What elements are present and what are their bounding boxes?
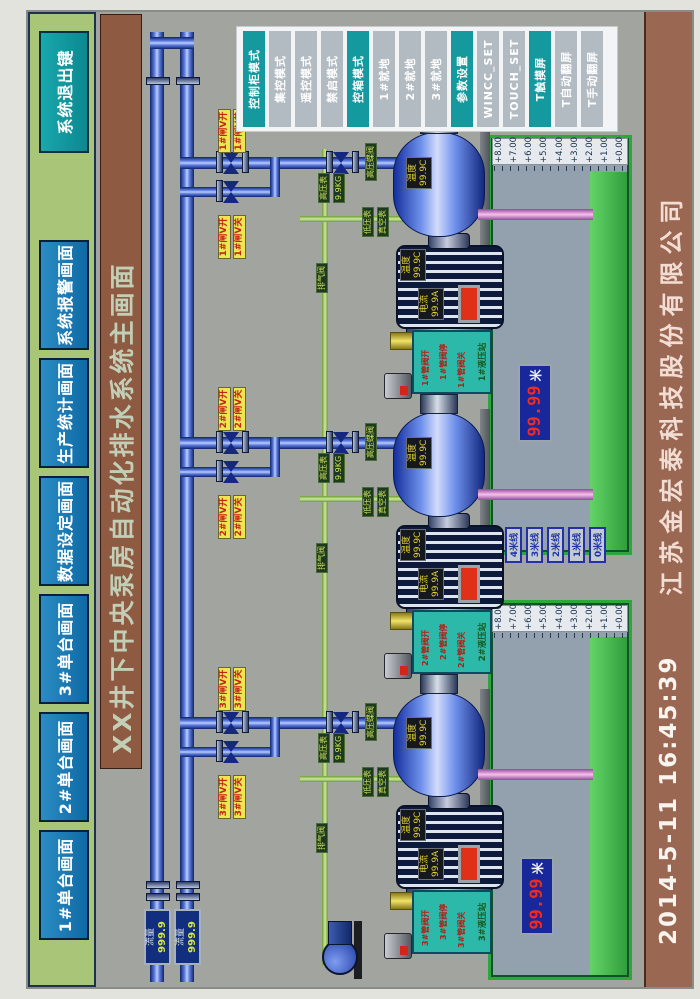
hydraulic-nozzle <box>390 612 414 630</box>
pipe-valve-open-button[interactable]: 2#管阀开 <box>420 630 431 666</box>
scale-tick: +4.00 <box>556 140 565 163</box>
level-line-button-0m[interactable]: 0米线 <box>589 527 606 563</box>
flange <box>352 711 359 733</box>
value: 99.9A <box>431 571 441 597</box>
vacuum-gauge-label: 真空表 <box>377 767 389 797</box>
flow-label: 流量 <box>146 928 156 946</box>
gate-valve[interactable] <box>222 152 240 174</box>
nav-button-data-setting[interactable]: 数据设定画面 <box>39 476 89 586</box>
status-bar: 2014-5-11 16:45:39 江苏金宏泰科技股份有限公司 <box>644 12 692 987</box>
gate-valve[interactable] <box>222 181 240 203</box>
page-title: XX井下中央泵房自动化排水系统主画面 <box>103 261 139 768</box>
mode-button-control-box[interactable]: 控箱模式 <box>347 31 369 127</box>
scale-tick: +6.00 <box>525 140 534 163</box>
scale-tick: +5.00 <box>540 140 549 163</box>
gate-open-label: 2#闸V开 <box>218 495 231 539</box>
pipe-valve-open-button[interactable]: 3#管阀开 <box>420 910 431 946</box>
sump-right-ruler-ticks <box>494 166 626 171</box>
hmi-screen: 1#单台画面 2#单台画面 3#单台画面 数据设定画面 生产统计画面 系统报警画… <box>28 12 692 987</box>
suction-pipe <box>478 489 593 500</box>
label: 温度 <box>408 164 418 182</box>
check-valve <box>332 432 350 454</box>
motor-current-label: 电流99.9A <box>418 568 444 600</box>
label: 电流 <box>420 575 430 593</box>
level-line-button-2m[interactable]: 2米线 <box>547 527 564 563</box>
riser-elbow <box>270 437 280 477</box>
flow-value: 999.9 <box>157 921 168 953</box>
motor-alarm-indicator <box>458 285 480 323</box>
hydraulic-nozzle <box>390 332 414 350</box>
sump-left-level-scale: +8.00+7.00+6.00+5.00+4.00+3.00+2.00+1.00… <box>492 605 628 632</box>
level-value: 99.99 <box>527 878 547 929</box>
pump-temp-label: 温度99.9C <box>406 717 432 749</box>
nav-button-pump1-screen[interactable]: 1#单台画面 <box>39 830 89 940</box>
motor-alarm-indicator <box>458 565 480 603</box>
level-unit: 米 <box>529 862 546 874</box>
motor-temp-label: 温度99.9C <box>400 249 426 281</box>
scale-tick: +3.00 <box>571 140 580 163</box>
value: 99.9C <box>413 252 423 278</box>
vent-valve-label: 排气阀 <box>316 543 328 573</box>
mode-button-auto-page[interactable]: T自动翻屏 <box>555 31 577 127</box>
mode-button-touchscreen[interactable]: T触摸屏 <box>529 31 551 127</box>
hydraulic-nozzle <box>390 892 414 910</box>
pipe-valve-stop-button[interactable]: 3#管阀停 <box>438 904 449 940</box>
motor-temp-label: 温度99.9C <box>400 809 426 841</box>
hydraulic-station-label: 2#液压站 <box>476 623 488 662</box>
flange <box>242 431 249 453</box>
scale-tick: +4.00 <box>556 607 565 630</box>
lp-gauge-label: 低压表 <box>362 767 374 797</box>
level-line-button-3m[interactable]: 3米线 <box>526 527 543 563</box>
hydraulic-station-box-1: 1#管阀开 1#管阀停 1#管阀关 1#液压站 <box>412 330 492 394</box>
motor-alarm-indicator <box>458 845 480 883</box>
pipe-valve-open-button[interactable]: 1#管阀开 <box>420 350 431 386</box>
scale-tick: +7.00 <box>510 607 519 630</box>
mode-button-central[interactable]: 集控模式 <box>269 31 291 127</box>
nav-button-pump3-screen[interactable]: 3#单台画面 <box>39 594 89 704</box>
hp-gauge-value: 9.9KG <box>333 733 345 763</box>
flange <box>146 77 170 85</box>
hydraulic-station-label: 3#液压站 <box>476 903 488 942</box>
mode-button-touch-set[interactable]: TOUCH_SET <box>503 31 525 127</box>
gate-valve[interactable] <box>222 741 240 763</box>
motor-current-label: 电流99.9A <box>418 288 444 320</box>
check-valve <box>332 712 350 734</box>
hp-gauge-value: 9.9KG <box>333 453 345 483</box>
level-unit: 米 <box>527 369 544 381</box>
pipe-valve-close-button[interactable]: 3#管阀关 <box>456 912 467 948</box>
datetime-display: 2014-5-11 16:45:39 <box>656 655 682 945</box>
pump-temp-label: 温度99.9C <box>406 437 432 469</box>
gate-close-label: 2#闸V关 <box>233 495 246 539</box>
vacuum-gauge-label: 真空表 <box>377 487 389 517</box>
mode-button-local-1[interactable]: 1#就地 <box>373 31 395 127</box>
scale-tick: +7.00 <box>510 140 519 163</box>
scale-tick: +0.00 <box>616 140 625 163</box>
discharge-main-pipe-1 <box>150 32 164 982</box>
vacuum-gauge-label: 真空表 <box>377 207 389 237</box>
level-line-button-1m[interactable]: 1米线 <box>568 527 585 563</box>
hp-gauge-label: 高压表 <box>318 733 330 763</box>
sump-right-level-scale: +8.00+7.00+6.00+5.00+4.00+3.00+2.00+1.00… <box>492 138 628 165</box>
title-bar: XX井下中央泵房自动化排水系统主画面 <box>100 14 142 769</box>
scale-tick: +2.00 <box>586 140 595 163</box>
gate-close-label: 3#闸V关 <box>233 775 246 819</box>
value: 99.9C <box>419 720 429 746</box>
sump-right-level-display: 99.99 米 <box>518 364 552 442</box>
pump-temp-label: 温度99.9C <box>406 157 432 189</box>
flange <box>242 151 249 173</box>
mode-button-start-inhibit[interactable]: 禁启模式 <box>321 31 343 127</box>
hydraulic-pump-icon <box>384 373 412 399</box>
mode-button-local-2[interactable]: 2#就地 <box>399 31 421 127</box>
nav-bar: 1#单台画面 2#单台画面 3#单台画面 数据设定画面 生产统计画面 系统报警画… <box>28 12 96 987</box>
hydraulic-station-label: 1#液压站 <box>476 343 488 382</box>
hydraulic-station-box-3: 3#管阀开 3#管阀停 3#管阀关 3#液压站 <box>412 890 492 954</box>
label: 温度 <box>408 724 418 742</box>
mode-button-wincc-set[interactable]: WINCC_SET <box>477 31 499 127</box>
lp-gauge-label: 低压表 <box>362 487 374 517</box>
gate-close-label: 1#闸V关 <box>233 215 246 259</box>
hp-gauge-label: 高压表 <box>318 173 330 203</box>
scale-tick: +3.00 <box>571 607 580 630</box>
value: 99.9A <box>431 291 441 317</box>
label: 温度 <box>402 256 412 274</box>
label: 电流 <box>420 855 430 873</box>
scale-tick: +1.00 <box>601 140 610 163</box>
gate-valve[interactable] <box>222 461 240 483</box>
lp-gauge-label: 低压表 <box>362 207 374 237</box>
gate-open-label: 1#闸V开 <box>218 215 231 259</box>
check-valve <box>332 152 350 174</box>
mode-button-param-set[interactable]: 参数设置 <box>451 31 473 127</box>
gate-open-label: 3#闸V开 <box>218 775 231 819</box>
mode-button-local-3[interactable]: 3#就地 <box>425 31 447 127</box>
mode-panel: 控制柜模式 集控模式 遥控模式 禁启模式 控箱模式 1#就地 2#就地 3#就地… <box>236 26 618 132</box>
nav-button-system-alarm[interactable]: 系统报警画面 <box>39 240 89 350</box>
value: 99.9A <box>431 851 441 877</box>
flange <box>146 881 170 889</box>
flange <box>352 151 359 173</box>
label: 温度 <box>408 444 418 462</box>
pipe-valve-close-button[interactable]: 2#管阀关 <box>456 632 467 668</box>
flange <box>242 711 249 733</box>
label: 温度 <box>402 816 412 834</box>
hydraulic-station-box-2: 2#管阀开 2#管阀停 2#管阀关 2#液压站 <box>412 610 492 674</box>
nav-button-production-stats[interactable]: 生产统计画面 <box>39 358 89 468</box>
hydraulic-pump-icon <box>384 653 412 679</box>
mode-button-remote[interactable]: 遥控模式 <box>295 31 317 127</box>
pipe-valve-stop-button[interactable]: 1#管阀停 <box>438 344 449 380</box>
scale-tick: +2.00 <box>586 607 595 630</box>
mode-button-manual-page[interactable]: T手动翻屏 <box>581 31 603 127</box>
system-exit-button[interactable]: 系统退出键 <box>39 31 89 153</box>
gate-valve[interactable] <box>222 432 240 454</box>
value: 99.9C <box>413 812 423 838</box>
vent-valve-label: 排气阀 <box>316 263 328 293</box>
value: 99.9C <box>419 440 429 466</box>
gate-open-label: 1#闸V开 <box>218 109 231 153</box>
company-name: 江苏金宏泰科技股份有限公司 <box>652 192 687 595</box>
label: 电流 <box>420 295 430 313</box>
scale-tick: +1.00 <box>601 607 610 630</box>
pipe-valve-stop-button[interactable]: 2#管阀停 <box>438 624 449 660</box>
label: 温度 <box>402 536 412 554</box>
nav-button-pump2-screen[interactable]: 2#单台画面 <box>39 712 89 822</box>
flange <box>352 431 359 453</box>
hp-butterfly-valve-label: 高压蝶阀 <box>365 143 377 181</box>
suction-pipe <box>478 209 593 220</box>
suction-pipe <box>478 769 593 780</box>
motor-temp-label: 温度99.9C <box>400 529 426 561</box>
sump-right-water <box>590 172 627 550</box>
hp-gauge-label: 高压表 <box>318 453 330 483</box>
riser-elbow <box>270 717 280 757</box>
mode-button-cabinet[interactable]: 控制柜模式 <box>243 31 265 127</box>
riser-elbow <box>270 157 280 197</box>
pipe-valve-close-button[interactable]: 1#管阀关 <box>456 352 467 388</box>
motor-current-label: 电流99.9A <box>418 848 444 880</box>
main1-flow-display: 流量 999.9 <box>144 909 171 965</box>
sump-left-level-display: 99.99 米 <box>520 857 554 935</box>
level-value: 99.99 <box>525 385 545 436</box>
vent-valve-label: 排气阀 <box>316 823 328 853</box>
value: 99.9C <box>413 532 423 558</box>
gate-valve[interactable] <box>222 712 240 734</box>
hydraulic-pump-icon <box>384 933 412 959</box>
flange <box>146 893 170 901</box>
scale-tick: +0.00 <box>616 607 625 630</box>
sump-left-ruler-ticks <box>494 633 626 638</box>
screen-photo: 1#单台画面 2#单台画面 3#单台画面 数据设定画面 生产统计画面 系统报警画… <box>0 0 700 999</box>
sump-left-water <box>590 637 627 975</box>
scale-tick: +5.00 <box>540 607 549 630</box>
hp-gauge-value: 9.9KG <box>333 173 345 203</box>
scale-tick: +6.00 <box>525 607 534 630</box>
value: 99.9C <box>419 160 429 186</box>
